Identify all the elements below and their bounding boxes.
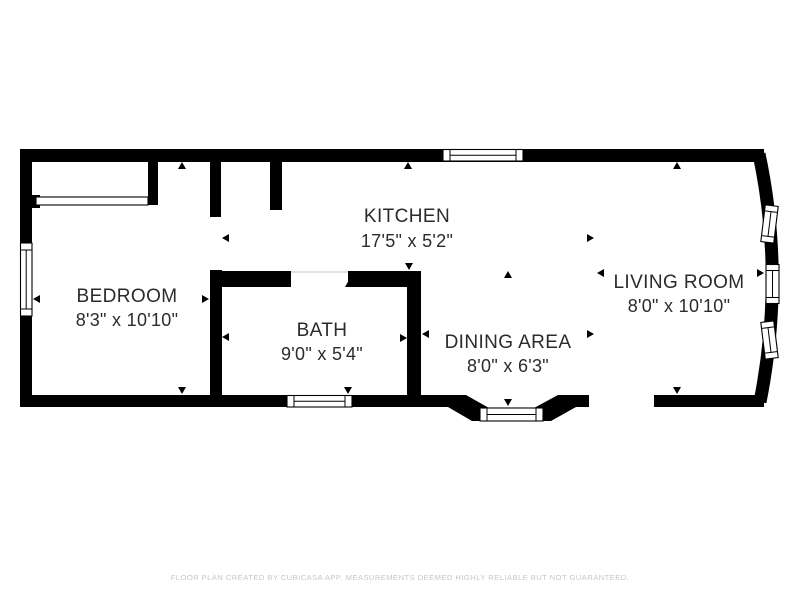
room-label-living: LIVING ROOM <box>613 272 744 293</box>
floorplan-svg: BEDROOM 8'3" x 10'10" KITCHEN 17'5" x 5'… <box>0 0 800 600</box>
wall-closet-stub-a <box>148 161 158 205</box>
room-dims-bath: 9'0" x 5'4" <box>281 344 363 364</box>
arrow-living-left <box>597 269 604 277</box>
wall-bedroom-right-upper <box>210 161 221 217</box>
arrow-kitchen-down <box>405 263 413 270</box>
window-top <box>443 150 523 162</box>
room-label-bedroom: BEDROOM <box>77 286 178 307</box>
arrow-bedroom-down <box>178 387 186 394</box>
arrow-bath-right <box>400 334 407 342</box>
wall-bottom-left <box>20 395 456 407</box>
window-right-2 <box>766 265 779 304</box>
arrow-living-down <box>673 387 681 394</box>
footer-disclaimer: FLOOR PLAN CREATED BY CUBICASA APP. MEAS… <box>171 573 630 582</box>
arrow-bath-left <box>222 333 229 341</box>
arrow-kitchen-up <box>404 162 412 169</box>
wall-bath-top-left <box>210 271 291 287</box>
arrow-living-right <box>757 269 764 277</box>
wall-bath-right <box>407 271 421 395</box>
wall-bottom-mid <box>570 395 589 407</box>
window-left <box>21 243 33 316</box>
room-label-dining: DINING AREA <box>445 332 572 353</box>
wall-bath-left <box>210 270 222 395</box>
arrow-bedroom-right <box>202 295 209 303</box>
arrow-kitchen-right <box>587 234 594 242</box>
arrow-bath-down <box>344 387 352 394</box>
closet-front <box>36 197 148 205</box>
room-dims-living: 8'0" x 10'10" <box>628 296 731 316</box>
wall-kitchen-stub-b <box>270 161 282 210</box>
window-bay <box>480 408 543 421</box>
arrow-dining-left <box>422 330 429 338</box>
arrow-living-up <box>673 162 681 169</box>
room-dims-kitchen: 17'5" x 5'2" <box>361 231 453 251</box>
arrow-dining-up <box>504 271 512 278</box>
wall-top <box>20 149 764 162</box>
arrow-kitchen-left <box>222 234 229 242</box>
arrow-dining-down <box>504 399 512 406</box>
floorplan-canvas: BEDROOM 8'3" x 10'10" KITCHEN 17'5" x 5'… <box>0 0 800 600</box>
arrow-bedroom-left <box>33 295 40 303</box>
room-label-kitchen: KITCHEN <box>364 206 450 227</box>
arrow-bedroom-up <box>178 162 186 169</box>
window-bath <box>287 396 352 408</box>
room-label-bath: BATH <box>297 320 348 341</box>
arrow-dining-right <box>587 330 594 338</box>
room-dims-dining: 8'0" x 6'3" <box>467 356 549 376</box>
room-dims-bedroom: 8'3" x 10'10" <box>76 310 179 330</box>
wall-bottom-right <box>654 395 764 407</box>
